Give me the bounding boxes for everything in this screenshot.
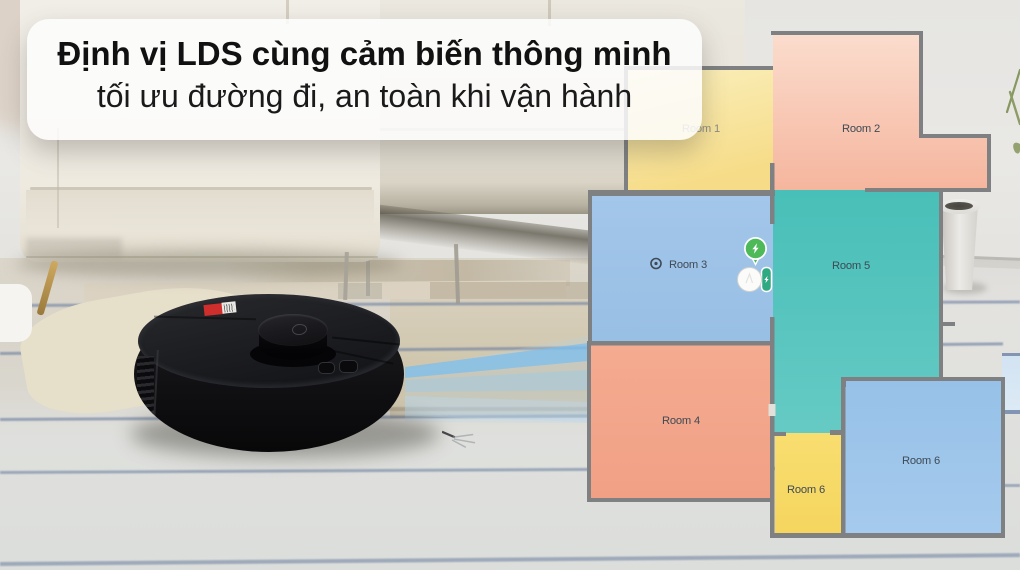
svg-text:Room 4: Room 4	[662, 415, 700, 427]
svg-text:Room 6: Room 6	[787, 484, 825, 496]
svg-text:Room 3: Room 3	[669, 259, 707, 271]
svg-text:Room 6: Room 6	[902, 455, 940, 467]
svg-text:Room 2: Room 2	[842, 123, 880, 135]
svg-text:Room 5: Room 5	[832, 260, 870, 272]
